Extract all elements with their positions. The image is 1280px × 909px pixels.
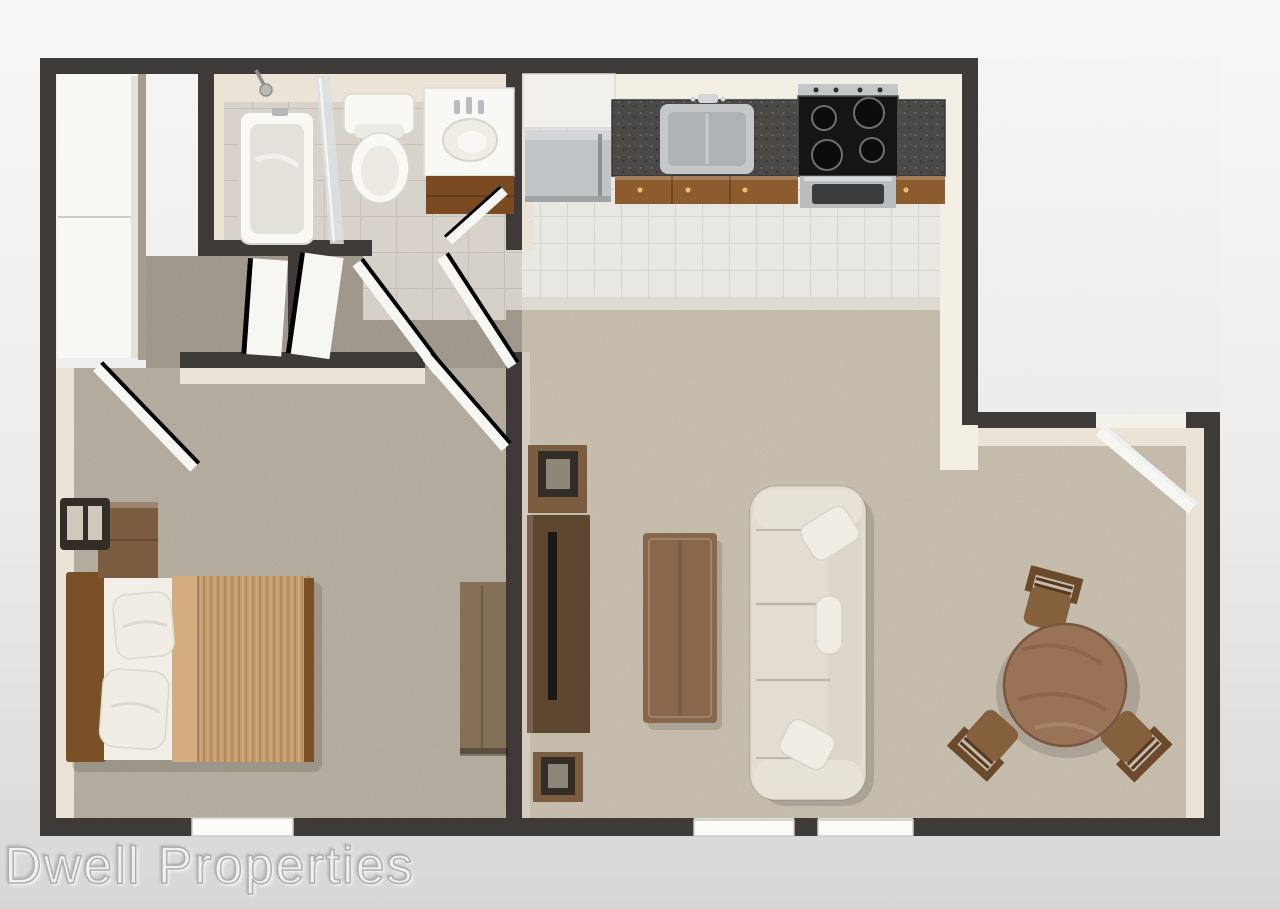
wall-face-bath-west [214, 74, 224, 242]
wall-dining-east [1204, 412, 1220, 836]
tub-faucet [272, 108, 288, 116]
burner [854, 98, 884, 128]
cabinet-handle [686, 188, 691, 193]
closet-track-wall [138, 74, 146, 360]
footboard [304, 578, 314, 762]
sliding-closet [58, 74, 146, 360]
watermark: Dwell Properties [4, 840, 415, 892]
stove-control-panel [798, 84, 898, 96]
burner [812, 106, 836, 130]
side-table-south [533, 752, 583, 802]
patio-window-west [694, 820, 794, 836]
wall-entry-stub-west [978, 412, 1096, 428]
burner [860, 138, 884, 162]
cube-lamp [60, 498, 110, 550]
side-table-north [528, 445, 587, 513]
bed [66, 572, 314, 762]
bedroom-window [192, 818, 293, 836]
wall-kitchen-right [962, 58, 978, 425]
oven [800, 176, 896, 208]
comforter-fold [172, 576, 198, 762]
closet-door-edge [131, 76, 138, 358]
coffee-table [643, 533, 722, 730]
burner [812, 140, 842, 170]
wall-bottom-3 [913, 818, 1220, 836]
table-lamp-south [541, 757, 575, 795]
wall-bottom-2 [293, 818, 694, 836]
wall-divider-lower [506, 352, 522, 818]
patio-mullion [794, 818, 818, 836]
linen-closet-door [241, 258, 288, 357]
sofa [750, 486, 874, 806]
round-dining-table [1004, 624, 1126, 746]
bathtub [240, 108, 314, 244]
stove [798, 84, 898, 208]
floor-plan-screenshot: Dwell Properties [0, 0, 1280, 909]
television [548, 532, 557, 700]
cabinet-handle [743, 188, 748, 193]
refrigerator [525, 130, 611, 202]
wall-bathroom-west [198, 58, 214, 256]
dresser [460, 582, 508, 756]
wall-face-bedroom-north [180, 368, 425, 384]
bed-pillow [112, 591, 175, 660]
kitchen-sink [660, 94, 754, 174]
wall-face-entry-south [978, 428, 1204, 446]
floor-plan-rendering [0, 0, 1280, 909]
bed-pillow [99, 668, 170, 750]
cabinet-handle [638, 188, 643, 193]
entry-door-threshold [1096, 414, 1186, 428]
white-cabinet [523, 74, 615, 128]
tv-console [527, 515, 590, 733]
cabinet-handle [904, 188, 909, 193]
wall-face-entry-end [962, 425, 978, 470]
sofa-bolster [816, 596, 842, 654]
patio-window-east [818, 820, 913, 836]
wall-bottom-1 [40, 818, 192, 836]
sink-faucet [698, 94, 718, 103]
wall-left [40, 58, 56, 836]
table-lamp-north [538, 451, 578, 497]
